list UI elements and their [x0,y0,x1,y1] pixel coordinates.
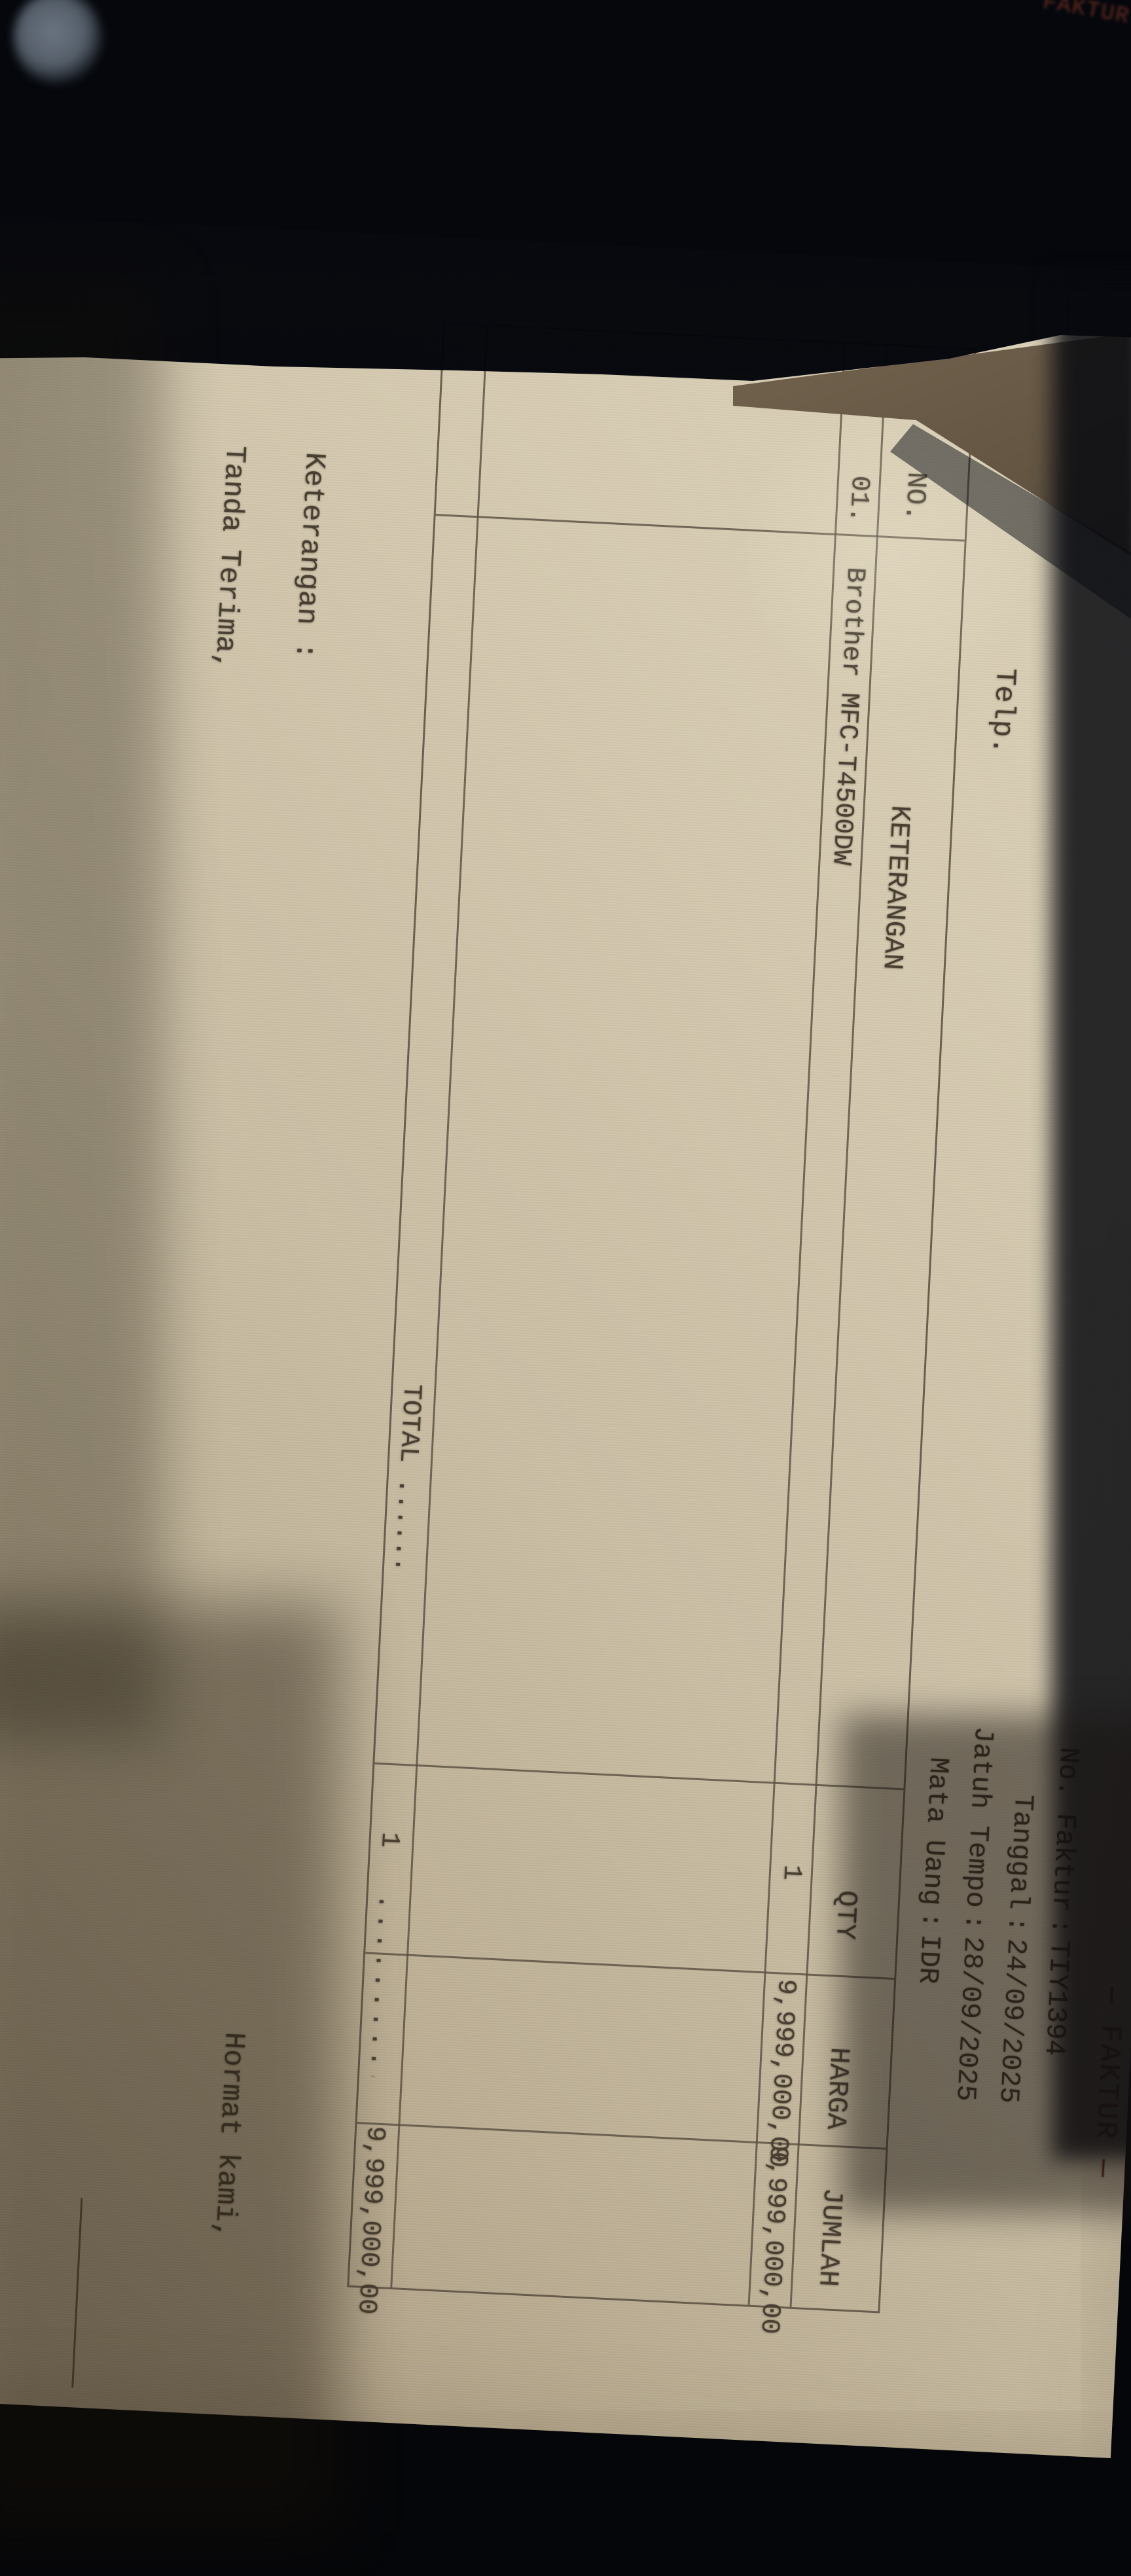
row1-harga: 9,999,000,00 [764,1978,800,2130]
header-qty: QTY [829,1889,863,1941]
tanda-terima-label: Tanda Terima, [207,445,251,671]
invoice-table: NO. KETERANGAN QTY HARGA JUMLAH 01. Brot… [347,322,976,2313]
invoice-title: — FAKTUR — [1086,1986,1128,2179]
header-harga: HARGA [819,2047,855,2130]
keterangan-note-label: Keterangan : [288,452,331,660]
header-no: NO. [898,471,932,522]
hormat-kami-label: Hormat kami, [207,2031,250,2240]
row1-jumlah: 9,999,000,00 [755,2145,793,2303]
tanggal-value: 24/09/2025 [986,1937,1037,2104]
signature-line [71,2198,82,2388]
invoice-paper: Telp. — FAKTUR — No. Faktur : TIY1394 Ta… [0,215,1131,2458]
invoice-meta-block: No. Faktur : TIY1394 Tanggal : 24/09/202… [899,1689,1093,2128]
col-line-no-keterangan [436,514,965,542]
mata-uang-value: IDR [906,1933,952,1985]
col-line-keterangan-qty [374,1762,903,1791]
colon: : [1037,1911,1082,1942]
total-label: TOTAL ...... [387,1384,426,1573]
telp-label: Telp. [984,668,1021,755]
header-keterangan: KETERANGAN [876,804,916,971]
total-qty: 1 [374,1831,404,1848]
col-line-harga-jumlah [357,2122,886,2150]
header-jumlah: JUMLAH [812,2187,848,2287]
total-jumlah: 9,999,000,00 [353,2125,390,2283]
colon: : [994,1908,1039,1939]
row1-qty: 1 [776,1864,806,1881]
photo-scene: Telp. — FAKTUR — No. Faktur : TIY1394 Ta… [0,0,1131,2576]
row1-no: 01. [842,475,874,524]
jatuh-tempo-value: 28/09/2025 [943,1935,994,2102]
col-line-qty-harga [365,1952,894,1980]
colon: : [952,1906,996,1937]
total-row-line [390,327,488,2288]
colon: : [908,1905,953,1935]
no-faktur-value: TIY1394 [1032,1940,1081,2057]
total-leader-dots: ............ [363,1893,401,2078]
